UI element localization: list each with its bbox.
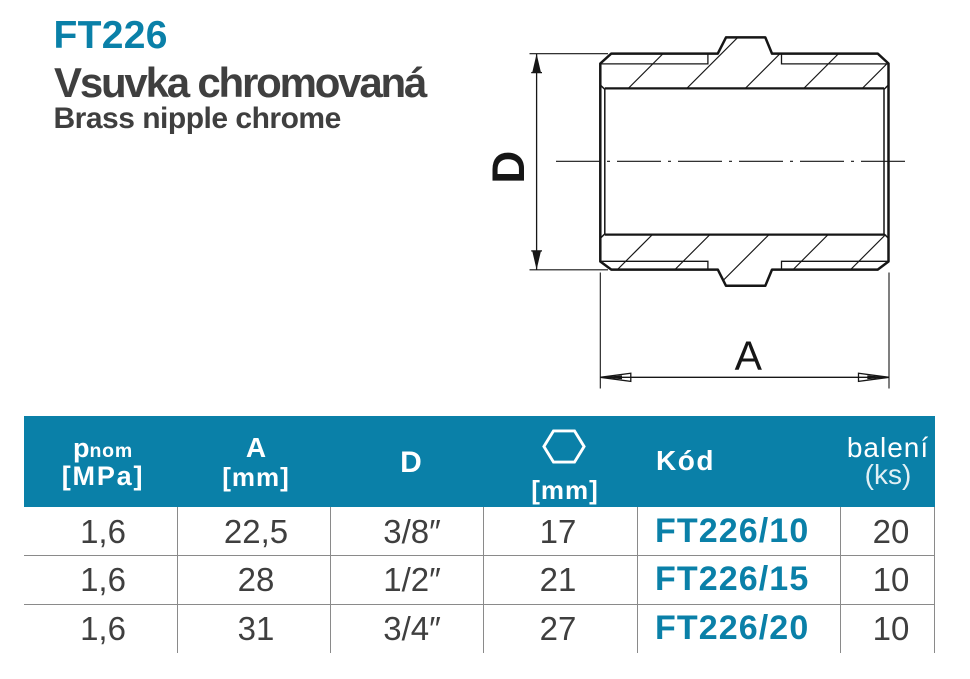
svg-text:D: D <box>483 151 534 184</box>
svg-text:A: A <box>735 333 763 379</box>
